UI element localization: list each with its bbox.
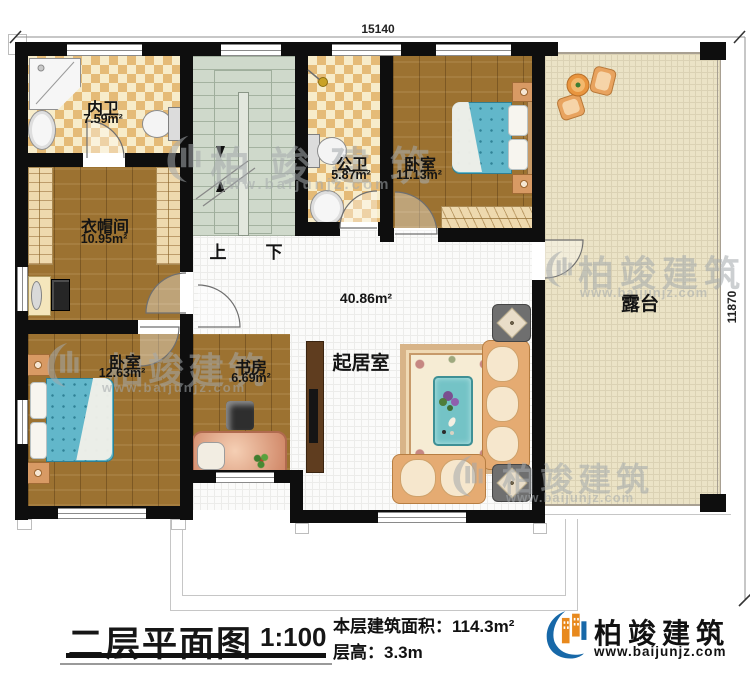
shower-detail xyxy=(36,62,74,104)
dimension-lines xyxy=(15,37,745,600)
room-area-public-bath: 5.87m² xyxy=(331,168,371,182)
title-underline-secondary xyxy=(60,663,332,665)
brand-logo-icon xyxy=(545,606,589,662)
stair-direction-arrows xyxy=(196,146,255,206)
terrace-table-set xyxy=(556,66,617,121)
floor-plan-page: 柏竣建筑 www.baijunjz.com 柏竣建筑 www.baijunjz.… xyxy=(0,0,750,674)
ceiling-lamp xyxy=(308,70,328,87)
room-area-living: 40.86m² xyxy=(340,290,392,306)
room-area-bedroom-top: 11.13m² xyxy=(396,168,442,182)
drawing-scale: 1:100 xyxy=(260,622,327,653)
room-area-cloakroom: 10.95m² xyxy=(81,232,128,246)
room-label-terrace: 露台 xyxy=(621,289,659,316)
dimension-top: 15140 xyxy=(352,22,404,36)
room-area-bedroom-left: 12.63m² xyxy=(99,366,146,380)
stairs-down-label: 下 xyxy=(266,238,283,263)
stairs-up-label: 上 xyxy=(210,238,227,263)
coffee-table-flowers xyxy=(439,391,459,435)
room-area-study: 6.69m² xyxy=(231,371,271,385)
title-underline xyxy=(66,653,326,658)
floor-height-text: 层高：3.3m xyxy=(333,638,423,663)
brand-website: www.baijunjz.com xyxy=(594,644,727,659)
drawing-title: 二层平面图 xyxy=(68,616,253,667)
dimension-right: 11870 xyxy=(725,275,739,339)
floor-area-text: 本层建筑面积：114.3m² xyxy=(333,612,514,637)
room-label-living: 起居室 xyxy=(332,348,389,375)
room-area-inner-bath: 7.59m² xyxy=(83,112,123,126)
